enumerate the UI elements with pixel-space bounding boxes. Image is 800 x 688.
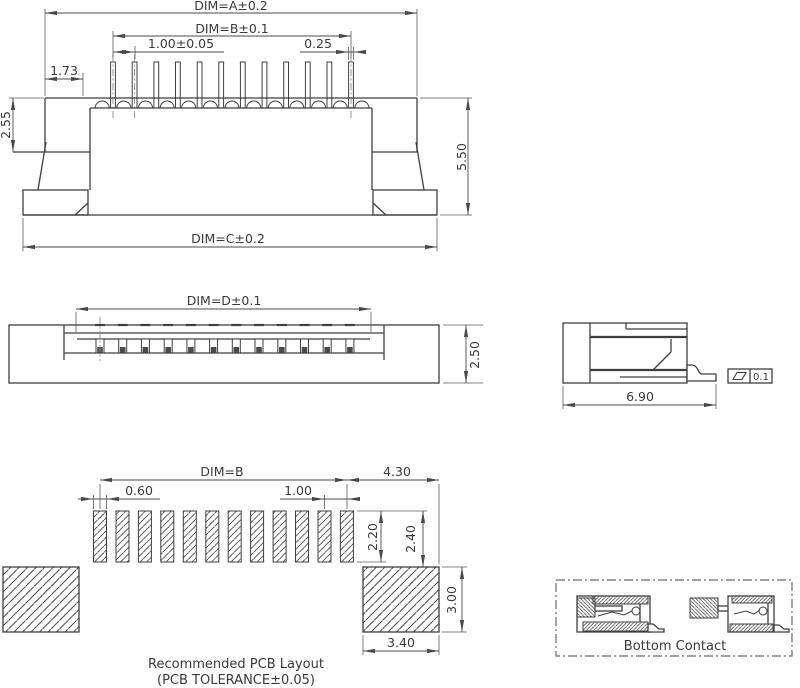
contact-slot-pin (143, 347, 149, 353)
contact-section-closed (577, 596, 664, 632)
solder-lead (687, 365, 716, 381)
pcb-anchor-height-label: 3.00 (444, 586, 459, 614)
pcb-anchor-width-label: 3.40 (387, 635, 415, 650)
contact-pin (176, 62, 181, 108)
contact-pin (154, 62, 159, 108)
dim-c-label: DIM=C±0.2 (191, 231, 265, 246)
contact-pitch-label: 1.00±0.05 (148, 36, 214, 51)
front-view-pins (111, 55, 354, 119)
contact-width-label: 0.25 (304, 36, 332, 51)
top-view: DIM=D±0.1 2.50 (9, 293, 483, 383)
pcb-pad (94, 511, 107, 562)
pcb-anchor-offset-label: 4.30 (383, 464, 411, 479)
contact-slot-pin (234, 347, 240, 353)
pcb-pad-length-label: 2.20 (365, 523, 380, 551)
ffc-cable-section (577, 598, 595, 617)
pcb-pad-width-label: 0.60 (125, 483, 153, 498)
contact-pin (197, 62, 202, 108)
contact-pin (240, 62, 245, 108)
pcb-pad (138, 511, 151, 562)
pcb-pad (183, 511, 196, 562)
dim-b-label: DIM=B±0.1 (195, 21, 269, 36)
contact-slot-pin (279, 347, 285, 353)
housing-top-section (732, 596, 772, 603)
connector-drawing-sheet: DIM=A±0.2 DIM=B±0.1 1.00±0.05 0.25 1.73 … (0, 0, 800, 688)
flatness-callout: 0.1 (728, 369, 772, 383)
pcb-pad (318, 511, 331, 562)
pcb-pad-clearance-label: 2.40 (403, 525, 418, 553)
pcb-signal-pads (94, 511, 354, 562)
solder-lead (648, 624, 664, 632)
contact-slot-pin (302, 347, 308, 353)
pcb-pad (206, 511, 219, 562)
contact-section-open (690, 596, 789, 632)
contact-slot-pin (120, 347, 126, 353)
contact-pin (262, 62, 267, 108)
total-height-label: 5.50 (454, 143, 469, 171)
pcb-pad (251, 511, 264, 562)
contact-pin (305, 62, 310, 108)
hold-down-nail-left (38, 142, 46, 190)
pcb-pad (340, 511, 353, 562)
contact-pin (219, 62, 224, 108)
anchor-pad-left (3, 567, 79, 632)
front-view: DIM=A±0.2 DIM=B±0.1 1.00±0.05 0.25 1.73 … (0, 0, 472, 251)
contact-pin (327, 62, 332, 108)
anchor-pad-right (363, 567, 439, 632)
edge-offset-label: 1.73 (50, 63, 78, 78)
hold-down-nail-right (416, 142, 424, 190)
contact-slot-pin (347, 347, 353, 353)
contact-slot-pin (188, 347, 194, 353)
front-view-body (13, 98, 437, 215)
contact-slot-pin (211, 347, 217, 353)
flatness-value: 0.1 (753, 372, 769, 383)
dim-d-label: DIM=D±0.1 (187, 293, 262, 308)
solder-lead (774, 625, 789, 632)
pcb-pad (296, 511, 309, 562)
pcb-pad (161, 511, 174, 562)
contact-slot-pin (324, 347, 330, 353)
housing-top-section (593, 596, 648, 604)
pcb-dim-b-label: DIM=B (200, 464, 243, 479)
pcb-pitch-label: 1.00 (284, 483, 312, 498)
dim-a-label: DIM=A±0.2 (194, 0, 267, 13)
contact-slot-pin (256, 347, 262, 353)
pcb-caption-line2: (PCB TOLERANCE±0.05) (157, 673, 315, 688)
housing-bottom-section (730, 624, 773, 632)
pcb-pad (228, 511, 241, 562)
side-width-label: 6.90 (626, 389, 654, 404)
pcb-caption-line1: Recommended PCB Layout (148, 657, 324, 672)
contact-slot-pin (165, 347, 171, 353)
side-view-body (563, 323, 716, 383)
contact-pin (284, 62, 289, 108)
side-view: 6.90 0.1 (563, 323, 772, 409)
top-view-body (9, 325, 439, 383)
top-height-label: 2.50 (467, 341, 482, 369)
pcb-pad (273, 511, 286, 562)
shoulder-height-label: 2.55 (0, 111, 13, 139)
housing-bottom-section (583, 622, 648, 631)
pcb-pad (116, 511, 129, 562)
pcb-layout-view: DIM=B 4.30 0.60 1.00 2.20 2.40 3.00 3.40… (3, 464, 467, 688)
drawing-canvas: DIM=A±0.2 DIM=B±0.1 1.00±0.05 0.25 1.73 … (0, 0, 800, 688)
bottom-contact-detail: Bottom Contact (556, 580, 792, 656)
bottom-contact-label: Bottom Contact (624, 639, 726, 654)
ffc-cable-section (690, 598, 718, 618)
